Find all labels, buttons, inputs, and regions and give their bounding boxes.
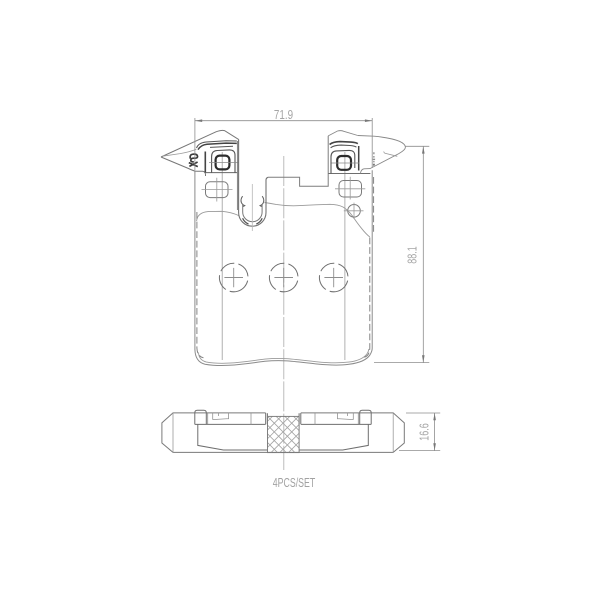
svg-text:16.6: 16.6 [416, 423, 431, 441]
svg-text:4PCS/SET: 4PCS/SET [273, 475, 316, 490]
svg-text:88.1: 88.1 [404, 246, 419, 264]
svg-text:71.9: 71.9 [274, 107, 293, 122]
